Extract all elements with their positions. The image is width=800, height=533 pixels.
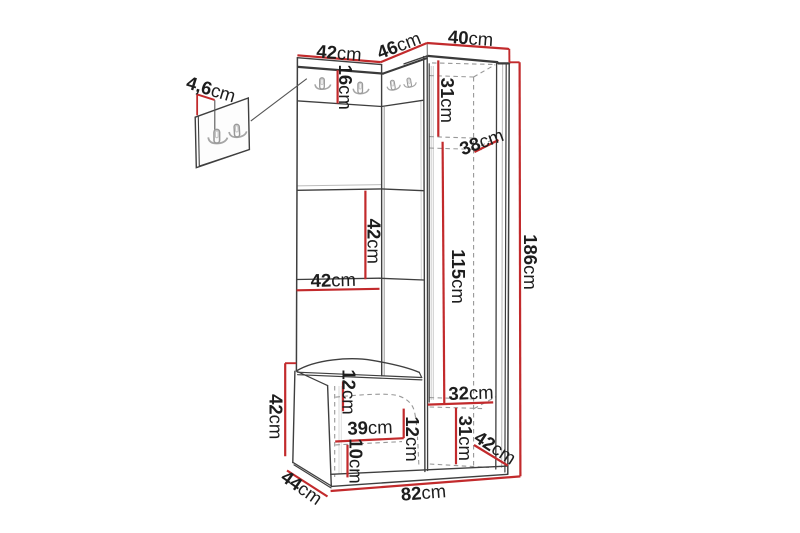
svg-text:42cm: 42cm <box>310 269 356 291</box>
svg-text:39cm: 39cm <box>347 416 393 439</box>
svg-text:12cm: 12cm <box>338 369 359 414</box>
svg-text:186cm: 186cm <box>520 234 541 290</box>
svg-text:42cm: 42cm <box>316 40 363 64</box>
svg-text:31cm: 31cm <box>437 78 458 123</box>
svg-text:42cm: 42cm <box>363 219 384 264</box>
svg-text:115cm: 115cm <box>448 249 469 304</box>
svg-text:82cm: 82cm <box>400 480 447 504</box>
svg-text:16cm: 16cm <box>335 65 356 110</box>
svg-text:32cm: 32cm <box>448 381 494 404</box>
svg-text:10cm: 10cm <box>346 438 367 483</box>
svg-text:40cm: 40cm <box>447 26 494 50</box>
svg-text:42cm: 42cm <box>266 394 287 439</box>
svg-text:12cm: 12cm <box>402 416 423 461</box>
svg-text:31cm: 31cm <box>455 416 476 461</box>
